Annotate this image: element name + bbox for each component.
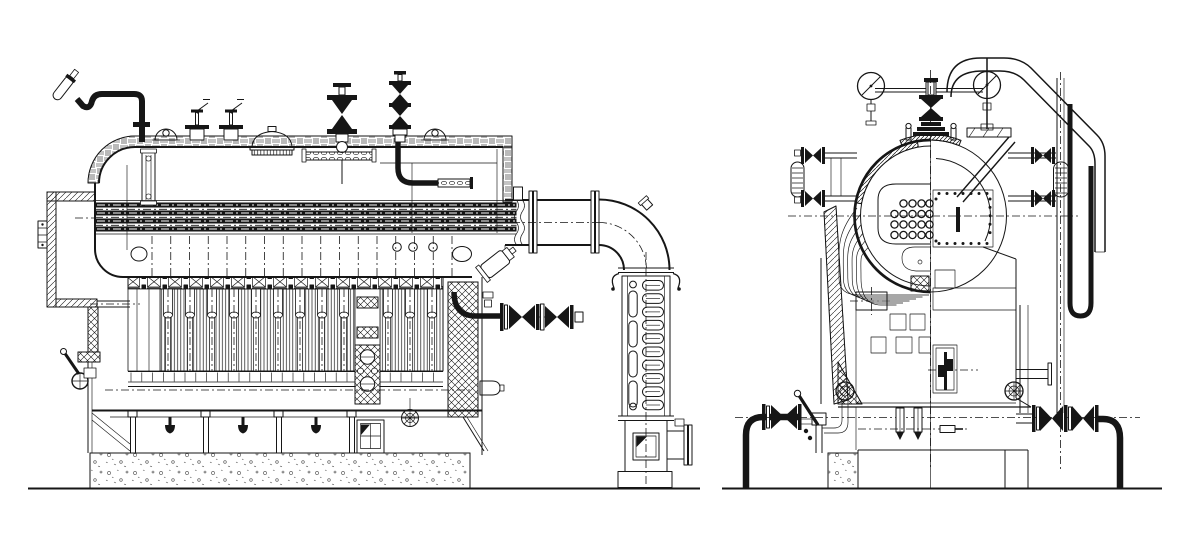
boiler-ga-drawing [0, 0, 1183, 543]
water-tube-centerlines [152, 236, 452, 276]
drain-pipes [896, 408, 922, 440]
left-blowdown-pipe [746, 404, 802, 488]
front-flange [38, 221, 47, 248]
grate-rod [858, 426, 968, 433]
tube-seat-band [128, 278, 443, 290]
convection-tube-bank [128, 289, 443, 387]
safety-valve-2 [219, 100, 244, 141]
water-column-left [791, 147, 857, 207]
drawing-sheet [0, 0, 1183, 543]
fire-tube-bank [95, 201, 517, 235]
pressure-gauge-left [858, 73, 885, 126]
tube-tick-row [131, 373, 433, 382]
flue-elbow [599, 196, 670, 270]
damper-actuator [928, 345, 978, 393]
loop-pipe [1070, 104, 1091, 316]
safety-valve-1 [185, 100, 210, 141]
side-view [28, 67, 700, 488]
lower-frame [92, 411, 482, 418]
concrete-foundation [90, 453, 470, 488]
ash-handwheel [402, 398, 419, 427]
inspection-lane [355, 289, 380, 404]
right-blowdown-pipe [735, 405, 1140, 488]
water-column-right [1008, 147, 1069, 207]
rear-wall [443, 277, 504, 455]
gauge-manifold-bar [875, 82, 983, 96]
end-view [722, 58, 1162, 489]
gauge-glass-tube [141, 149, 157, 205]
base-blocks [828, 450, 1028, 488]
drain-nozzles [165, 417, 321, 434]
access-door [357, 420, 384, 453]
handholes-and-plugs [131, 243, 472, 262]
hand-wheel [1005, 382, 1023, 400]
blowoff-whistle-pipe [50, 67, 150, 142]
drum-lagging-band [88, 136, 512, 202]
economizer-coils [629, 281, 664, 410]
stub-flange [1016, 363, 1052, 385]
main-steam-valve [302, 83, 376, 184]
rear-valve-train [495, 303, 583, 331]
